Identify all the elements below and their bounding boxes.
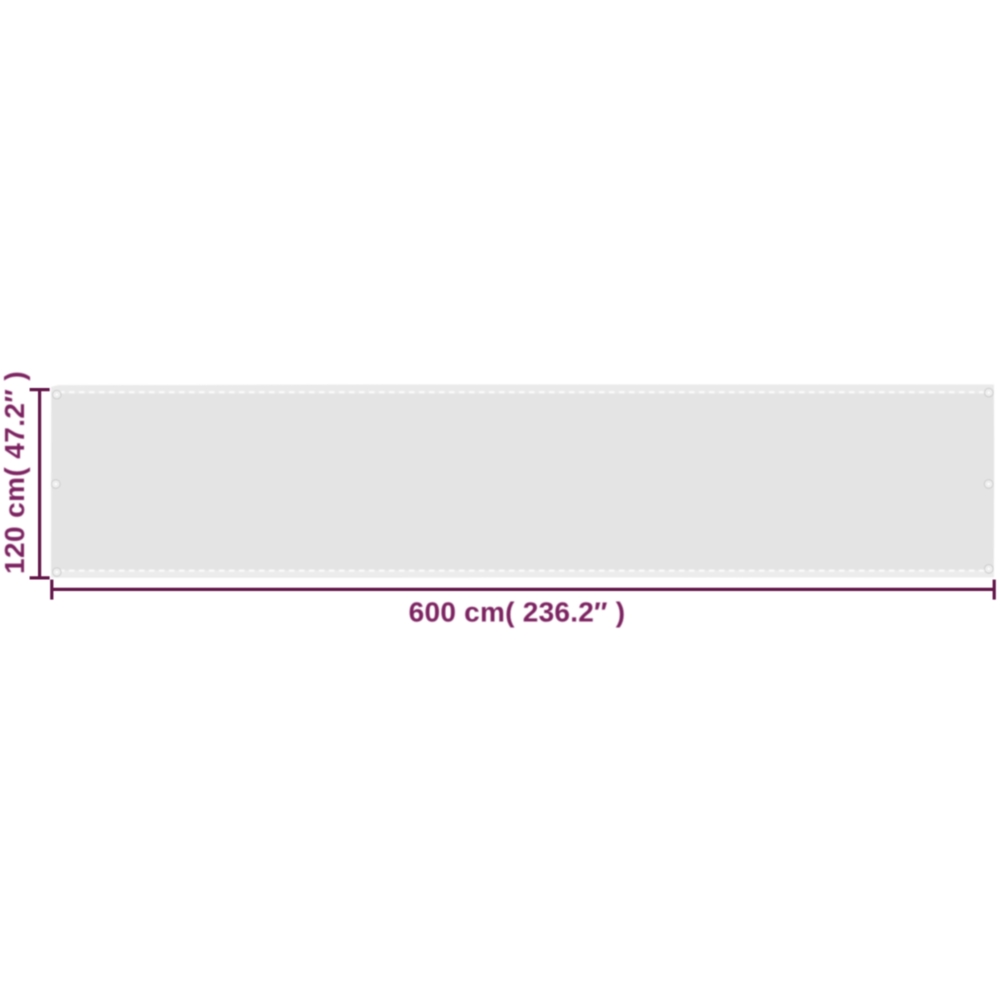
svg-text:600 cm( 236.2″ ): 600 cm( 236.2″ ) xyxy=(409,597,626,628)
svg-text:120 cm( 47.2″ ): 120 cm( 47.2″ ) xyxy=(0,371,30,574)
